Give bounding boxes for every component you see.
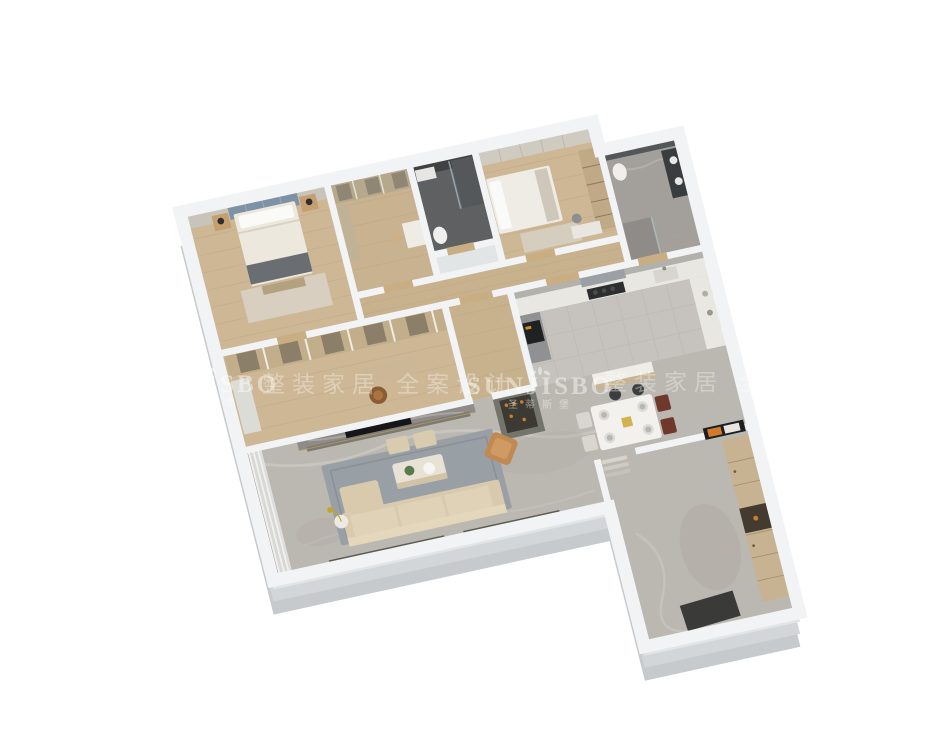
watermark-brand: SUNJISBO (133, 371, 279, 398)
watermark-brand-cn: 圣蒂斯堡 (174, 396, 242, 409)
floorplan-scene: SUNJISBO 圣蒂斯堡 整装家居 全案设计 SUNJISBO 圣蒂斯堡 整装… (0, 0, 950, 733)
building (172, 104, 808, 733)
watermark-brand-cn: 圣蒂斯堡 (508, 398, 576, 411)
watermark-brand: SUNJISBO (467, 373, 613, 400)
watermark-tagline: 整装家居 全案设计 (604, 370, 858, 396)
floorplan-render-3d: SUNJISBO 圣蒂斯堡 整装家居 全案设计 SUNJISBO 圣蒂斯堡 整装… (0, 0, 950, 733)
